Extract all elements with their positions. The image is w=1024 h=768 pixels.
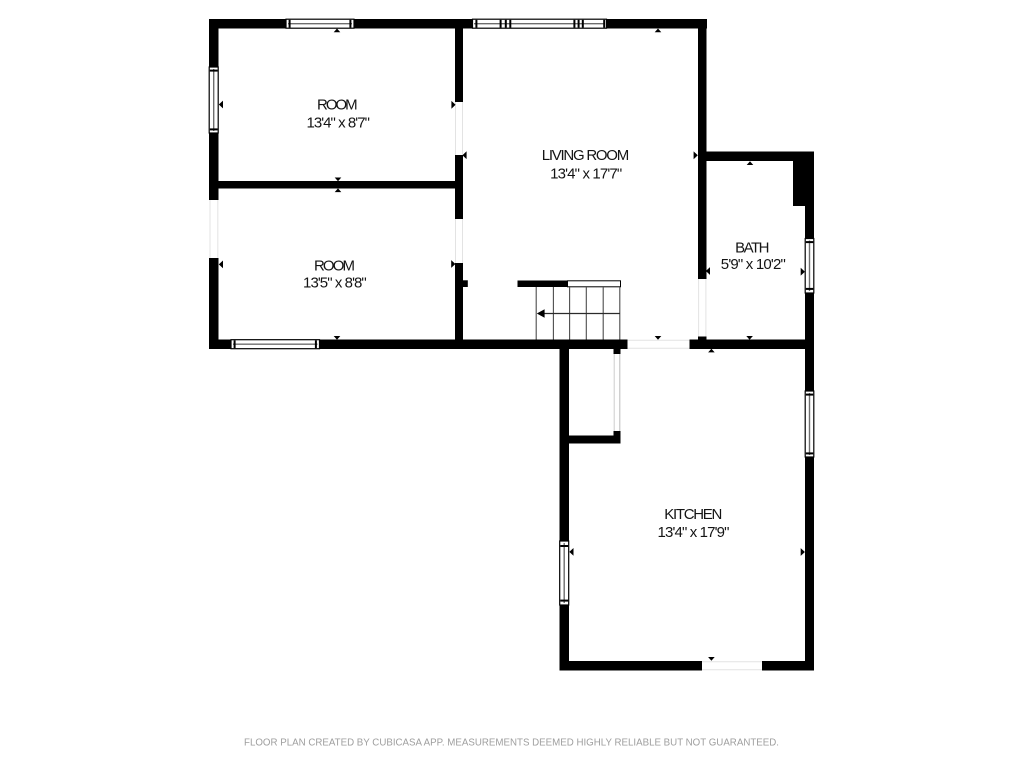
svg-text:ROOM: ROOM <box>314 258 355 275</box>
svg-text:13'4" x 17'7": 13'4" x 17'7" <box>550 165 622 182</box>
svg-text:ROOM: ROOM <box>317 97 358 114</box>
svg-text:FLOOR PLAN CREATED BY CUBICASA: FLOOR PLAN CREATED BY CUBICASA APP. MEAS… <box>244 736 779 748</box>
svg-text:13'4" x 17'9": 13'4" x 17'9" <box>658 524 730 541</box>
svg-text:KITCHEN: KITCHEN <box>664 506 722 523</box>
svg-text:5'9" x 10'2": 5'9" x 10'2" <box>721 256 786 273</box>
svg-text:LIVING ROOM: LIVING ROOM <box>542 147 629 164</box>
svg-text:13'5" x 8'8": 13'5" x 8'8" <box>303 275 367 292</box>
svg-text:13'4" x 8'7": 13'4" x 8'7" <box>306 114 370 131</box>
svg-text:BATH: BATH <box>735 240 769 257</box>
